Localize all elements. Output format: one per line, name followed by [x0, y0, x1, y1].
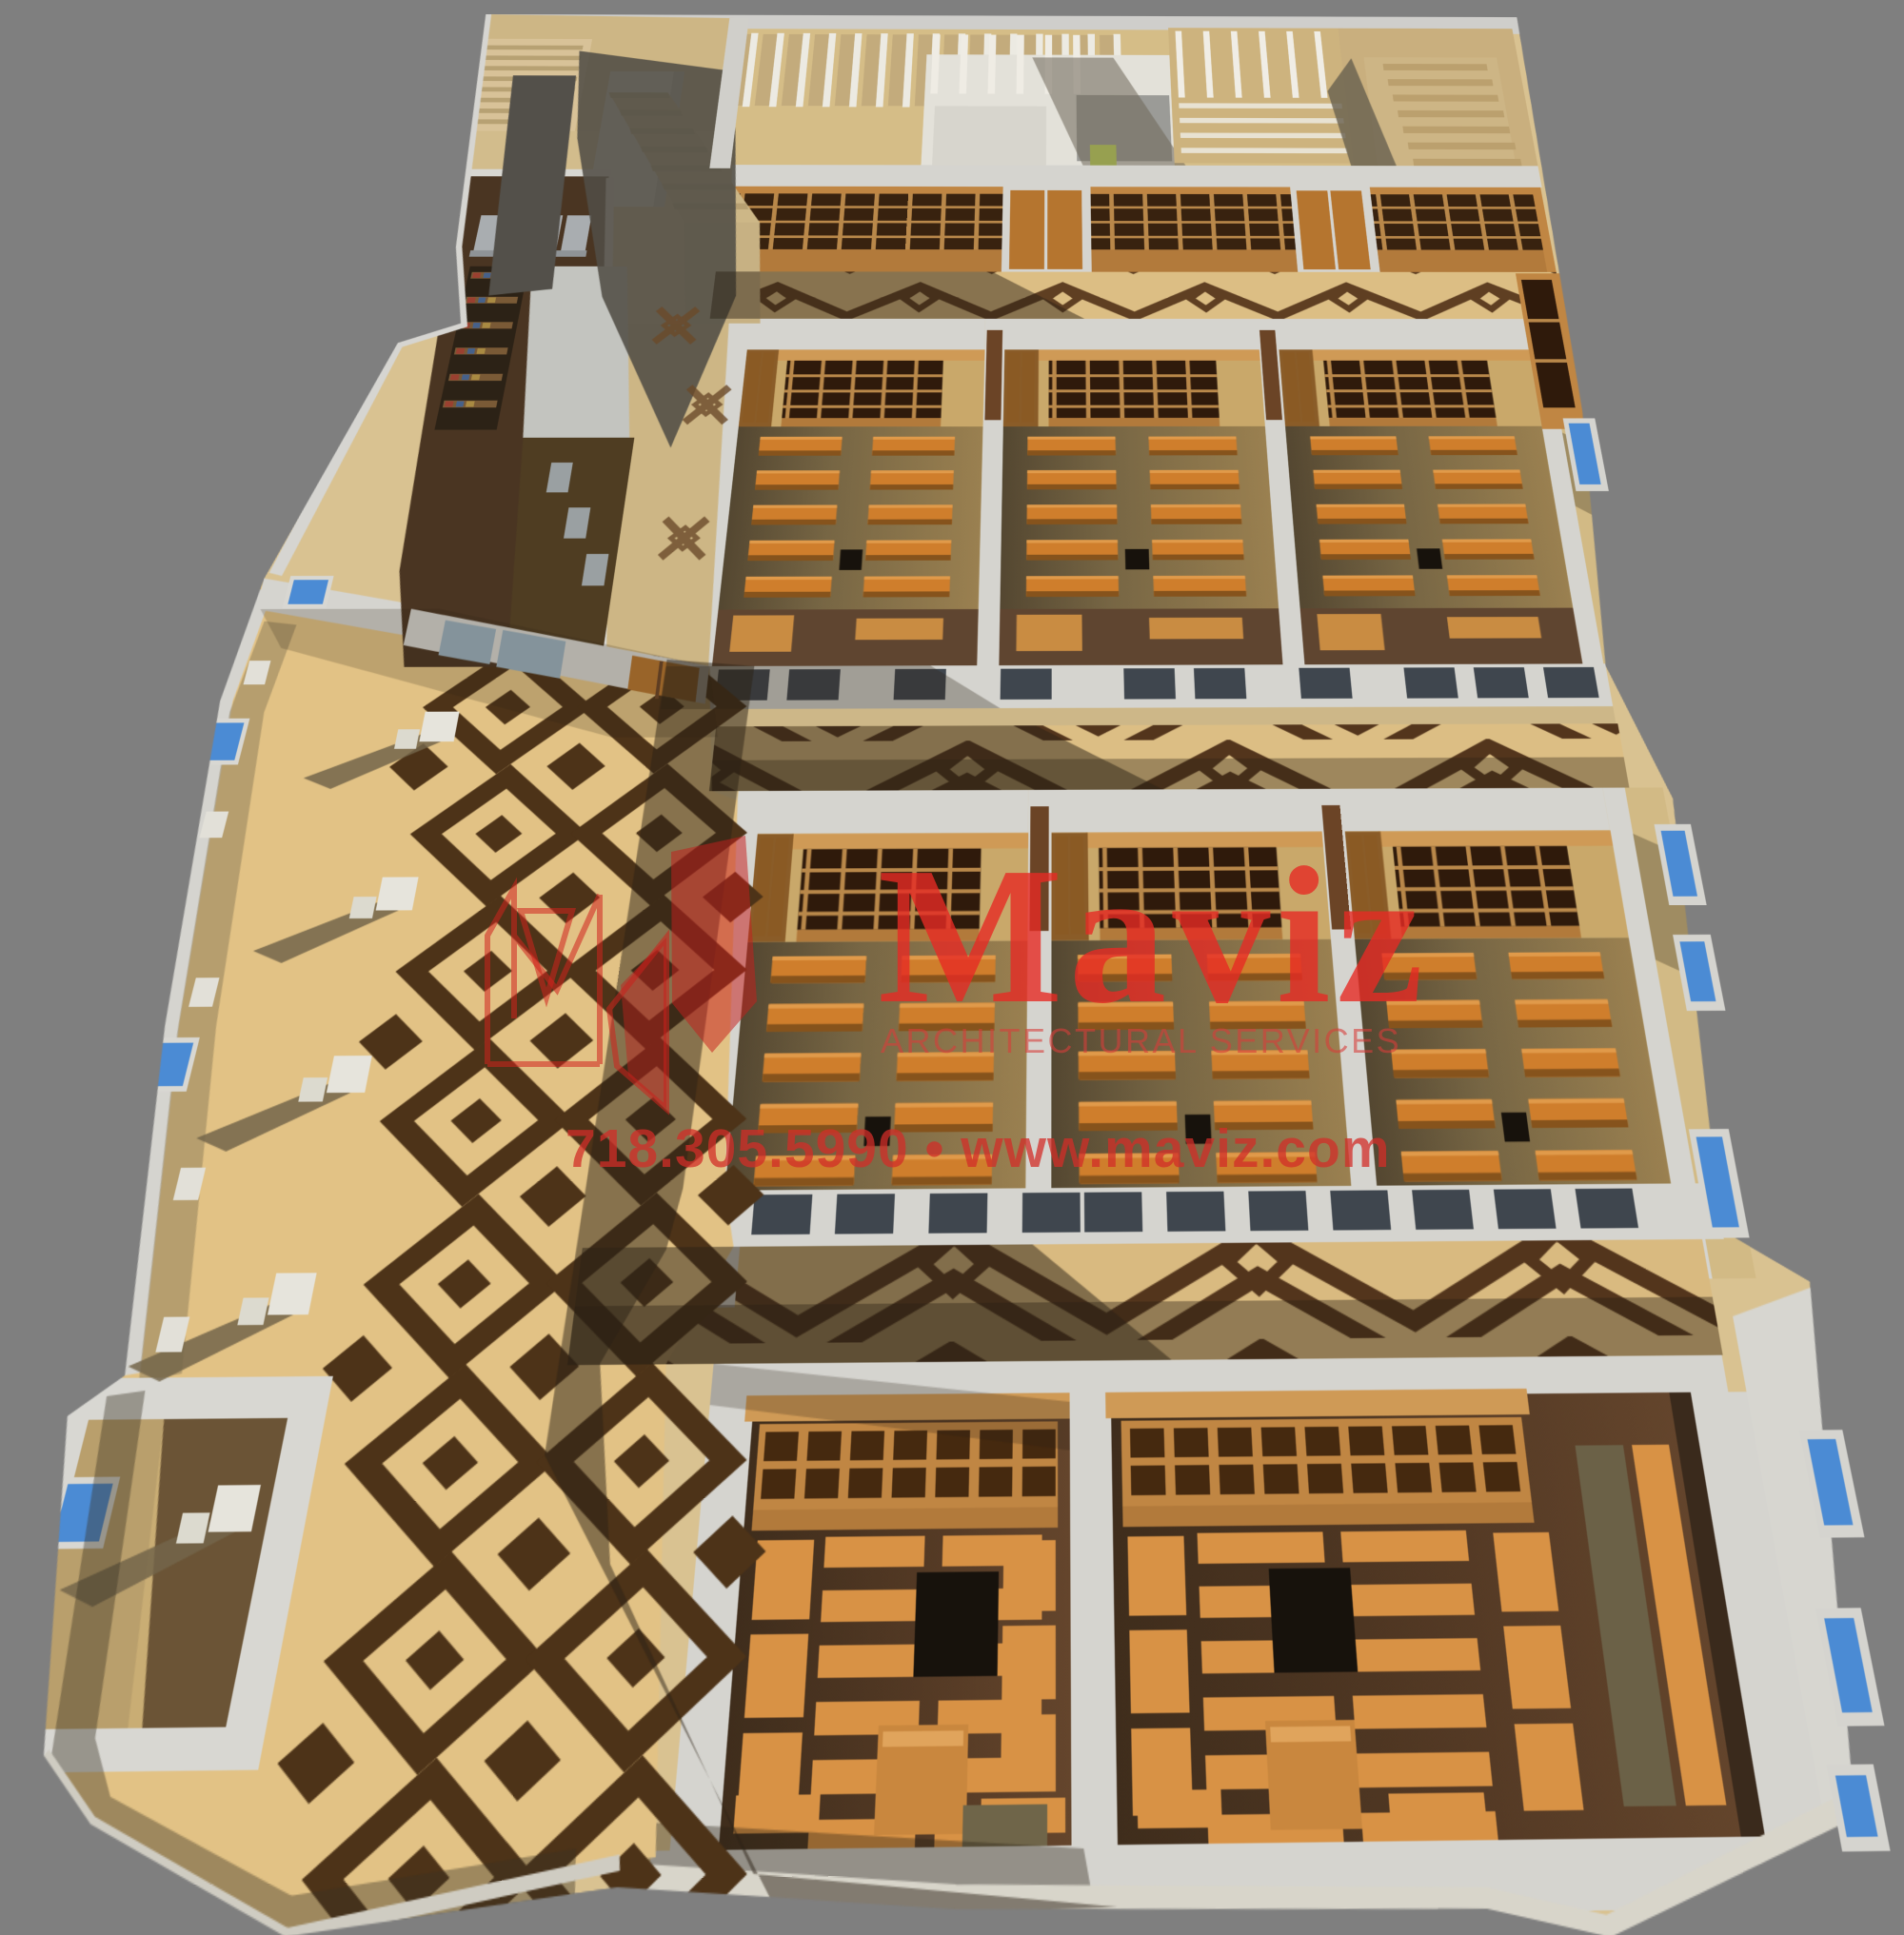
svg-text:Maviz: Maviz [878, 826, 1429, 1044]
svg-text:ARCHITECTURAL SERVICES: ARCHITECTURAL SERVICES [881, 1021, 1401, 1060]
svg-text:718.305.5990 • www.maviz.com: 718.305.5990 • www.maviz.com [565, 1118, 1391, 1179]
